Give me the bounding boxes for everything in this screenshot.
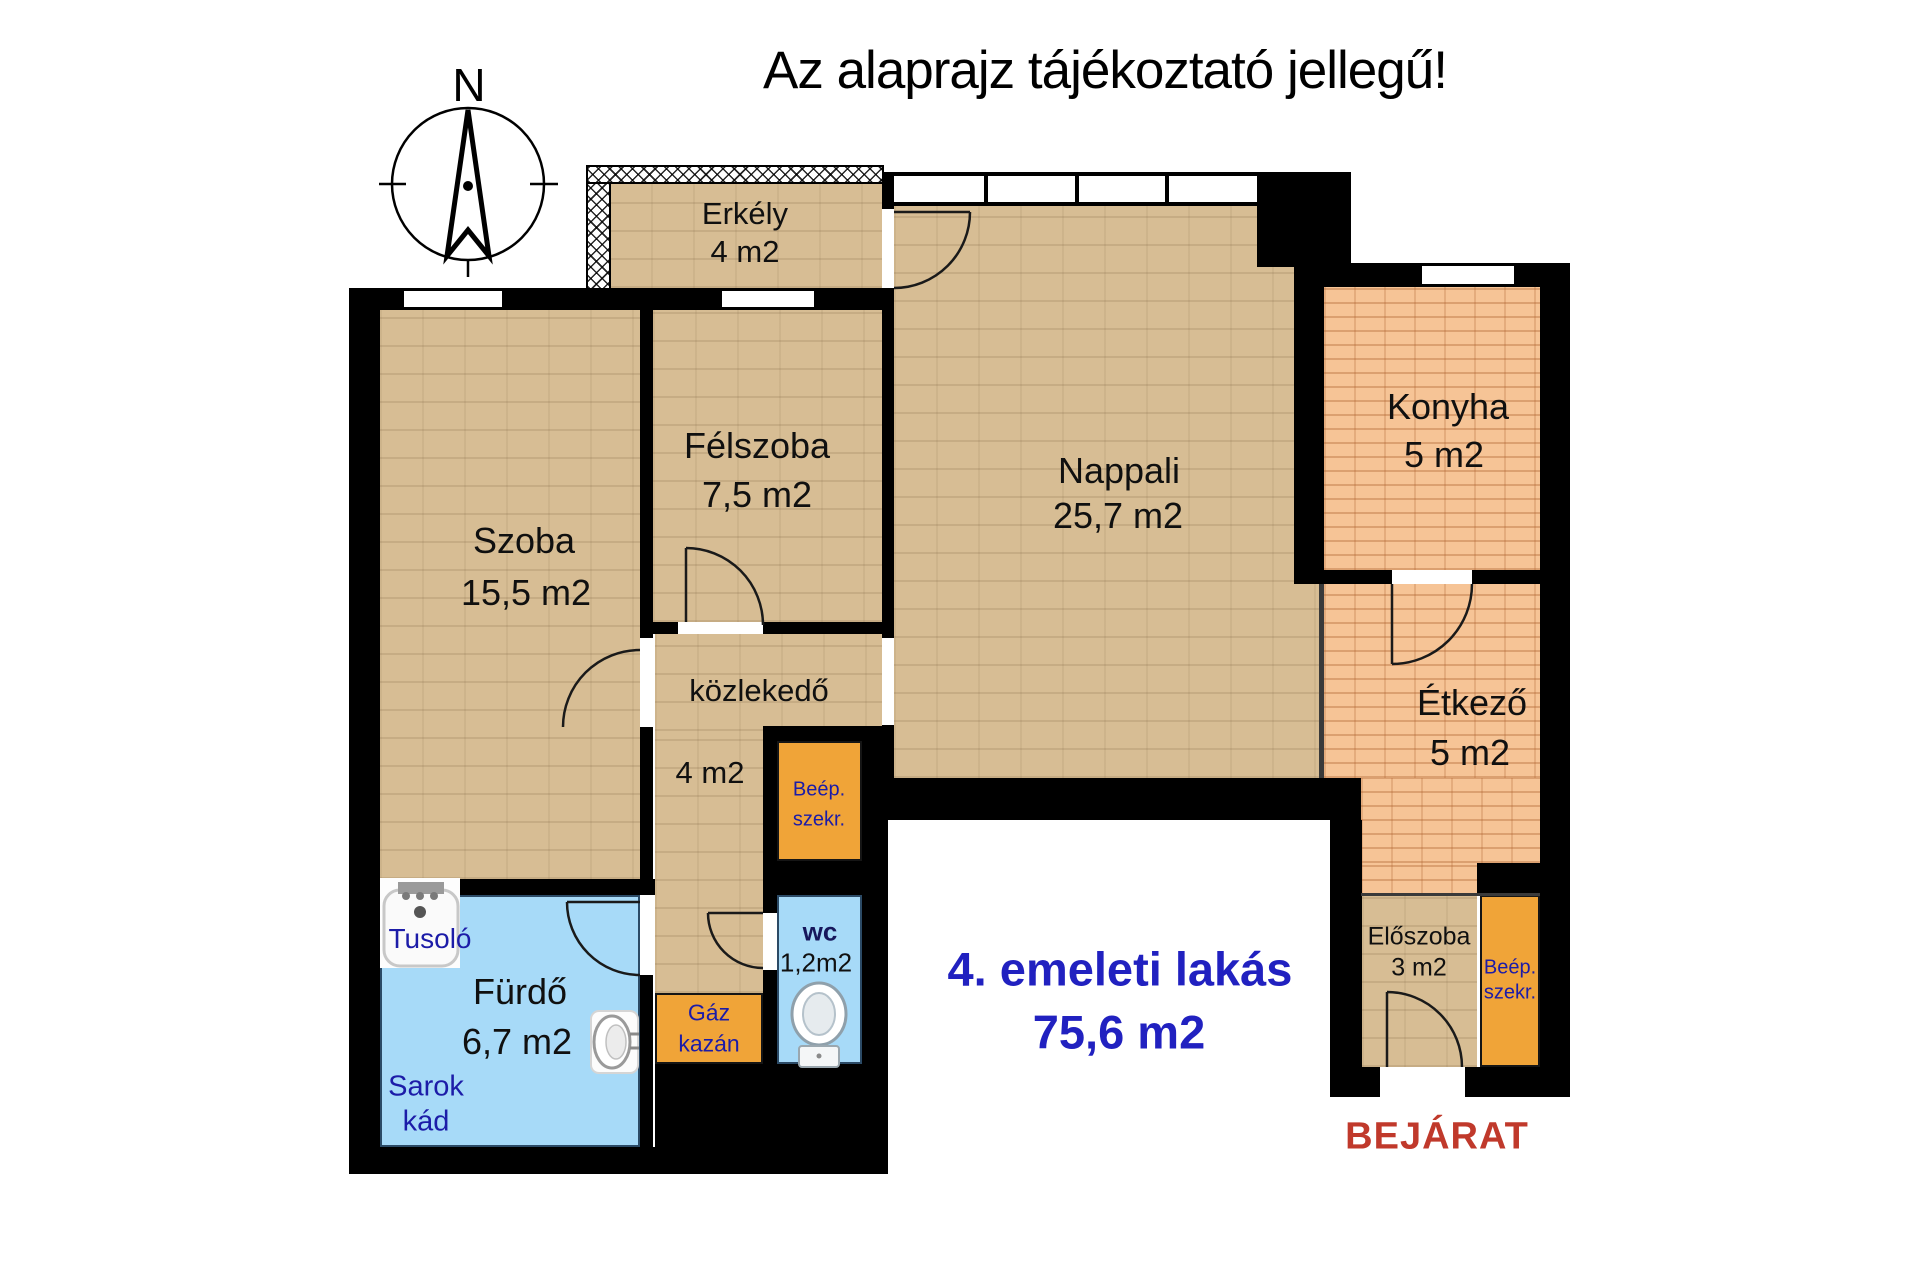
door-gap-nappali-kozlekedo — [882, 638, 894, 725]
label-cabinet2-line1: Beép. — [1484, 957, 1536, 980]
wall-szoba-felszoba — [640, 310, 653, 622]
room-nappali — [894, 206, 1319, 778]
door-gap-felszoba — [678, 622, 763, 634]
door-gap-erkely — [882, 209, 894, 288]
window-szoba — [404, 288, 502, 310]
wall-nappali-konyha — [1294, 287, 1324, 570]
label-etkezo-name: Étkező — [1417, 682, 1527, 724]
label-tusolo: Tusoló — [388, 923, 471, 955]
door-gap-entrance — [1380, 1067, 1465, 1097]
label-wc-name: wc — [803, 917, 838, 948]
label-szoba-area: 15,5 m2 — [461, 572, 591, 614]
window-divider-1 — [984, 172, 988, 206]
label-kozlekedo-name: közlekedő — [689, 673, 829, 709]
wall-nappali-bottom — [882, 778, 1361, 820]
wall-outer-left — [349, 288, 380, 1174]
wall-cabinet-wc-divider — [763, 861, 862, 895]
summary-line1: 4. emeleti lakás — [948, 942, 1293, 997]
label-furdo-area: 6,7 m2 — [462, 1021, 572, 1063]
door-gap-furdo — [640, 897, 653, 975]
floorplan-canvas: Az alaprajz tájékoztató jellegű! — [0, 0, 1920, 1280]
room-etkezo-lower — [1361, 863, 1477, 895]
label-sarok-kad-2: kád — [403, 1106, 450, 1139]
wall-bottom-mass — [655, 1064, 888, 1174]
entrance-label: BEJÁRAT — [1345, 1116, 1529, 1159]
label-felszoba-name: Félszoba — [684, 425, 830, 467]
label-erkely-area: 4 m2 — [711, 234, 780, 270]
label-konyha-name: Konyha — [1387, 386, 1509, 428]
label-sarok-kad-1: Sarok — [388, 1071, 464, 1104]
wall-erkely-nappali-a — [882, 172, 894, 209]
divider-etkezo-eloszoba — [1361, 893, 1540, 896]
label-konyha-area: 5 m2 — [1404, 434, 1484, 476]
wall-corner-block — [1257, 172, 1351, 267]
wall-furdo-bottom — [349, 1147, 676, 1174]
label-nappali-area: 25,7 m2 — [1053, 495, 1183, 537]
window-divider-3 — [1165, 172, 1169, 206]
window-konyha — [1422, 263, 1514, 287]
wall-etkezo-step — [1477, 863, 1545, 895]
wall-szoba-bottom — [349, 879, 655, 895]
label-etkezo-area: 5 m2 — [1430, 732, 1510, 774]
label-cabinet1-line1: Beép. — [793, 779, 845, 802]
window-divider-2 — [1075, 172, 1079, 206]
label-eloszoba-area: 3 m2 — [1391, 954, 1447, 983]
label-eloszoba-name: Előszoba — [1368, 923, 1471, 952]
page-title: Az alaprajz tájékoztató jellegű! — [763, 40, 1447, 101]
window-felszoba — [722, 288, 814, 310]
label-kozlekedo-area: 4 m2 — [676, 755, 745, 791]
label-szoba-name: Szoba — [473, 520, 575, 562]
door-gap-szoba — [640, 638, 653, 727]
door-gap-wc — [763, 913, 777, 970]
wall-outer-right-upper — [1540, 263, 1570, 895]
balcony-parapet-left — [588, 167, 609, 288]
label-erkely-name: Erkély — [702, 196, 788, 232]
label-felszoba-area: 7,5 m2 — [702, 474, 812, 516]
wall-eloszoba-left — [1330, 820, 1362, 1067]
wall-corridor-right-b — [763, 970, 777, 1064]
label-wc-area: 1,2m2 — [780, 948, 852, 979]
label-gaz-2: kazán — [678, 1031, 739, 1058]
label-gaz-1: Gáz — [688, 1000, 730, 1027]
balcony-parapet-top — [588, 167, 882, 182]
wall-outer-right-lower — [1540, 895, 1570, 1067]
compass-icon — [379, 108, 558, 277]
summary-line2: 75,6 m2 — [1033, 1005, 1205, 1060]
room-etkezo-mid — [1361, 778, 1540, 863]
wall-szoba-right — [640, 727, 653, 895]
label-cabinet1-line2: szekr. — [793, 809, 845, 832]
room-konyha — [1324, 287, 1540, 570]
divider-nappali-etkezo — [1319, 584, 1324, 778]
label-nappali-name: Nappali — [1058, 450, 1180, 492]
label-furdo-name: Fürdő — [473, 971, 567, 1013]
wall-furdo-right — [640, 975, 653, 1147]
label-cabinet2-line2: szekr. — [1484, 982, 1536, 1005]
wall-erkely-nappali-b — [882, 288, 894, 638]
door-gap-konyha-etkezo — [1392, 570, 1472, 584]
compass-north-label: N — [452, 58, 485, 112]
